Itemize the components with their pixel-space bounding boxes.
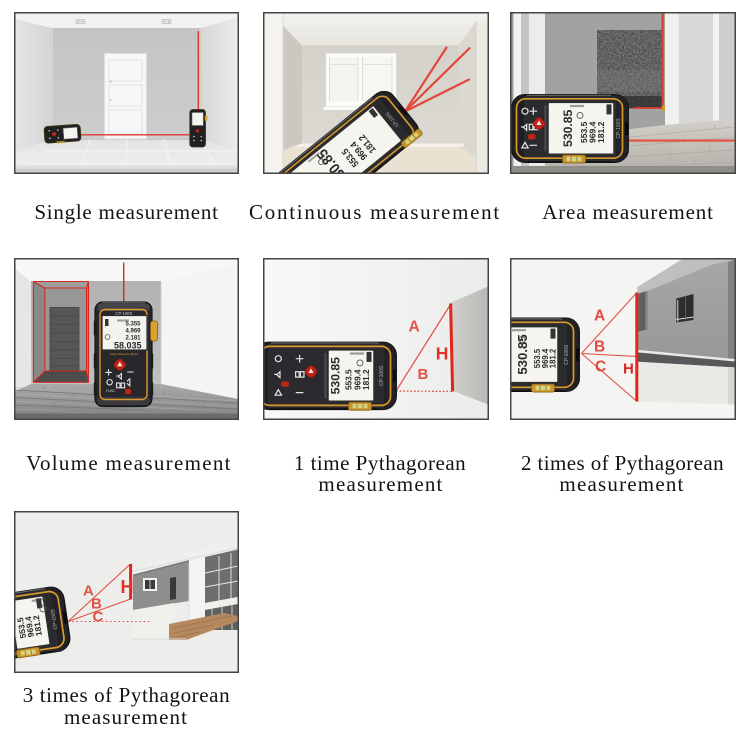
svg-text:181.2: 181.2 <box>362 369 371 390</box>
svg-text:C: C <box>93 609 104 626</box>
svg-text:181.2: 181.2 <box>549 348 558 368</box>
svg-text:B: B <box>418 366 429 383</box>
svg-text:Laser Distance Meter: Laser Distance Meter <box>110 352 139 356</box>
svg-text:530.85: 530.85 <box>515 334 530 374</box>
svg-text:H: H <box>121 577 134 597</box>
svg-text:553.5: 553.5 <box>345 369 354 390</box>
svg-text:C: C <box>595 359 606 376</box>
svg-text:B: B <box>594 339 605 356</box>
svg-text:A: A <box>409 319 420 336</box>
svg-text:4.969: 4.969 <box>125 329 141 335</box>
svg-text:530.85: 530.85 <box>561 109 575 146</box>
svg-text:530.85: 530.85 <box>329 357 343 394</box>
svg-text:CP-100S: CP-100S <box>616 118 622 139</box>
svg-text:5.355: 5.355 <box>125 322 141 328</box>
svg-text:CP-100S: CP-100S <box>379 365 385 386</box>
svg-text:58.035: 58.035 <box>114 341 142 351</box>
svg-text:181.2: 181.2 <box>596 121 606 143</box>
svg-text:A: A <box>594 308 605 325</box>
svg-text:H: H <box>436 344 449 364</box>
svg-text:H: H <box>623 360 634 377</box>
svg-text:CP-100S: CP-100S <box>564 344 570 365</box>
svg-text:FUNC: FUNC <box>106 389 116 393</box>
